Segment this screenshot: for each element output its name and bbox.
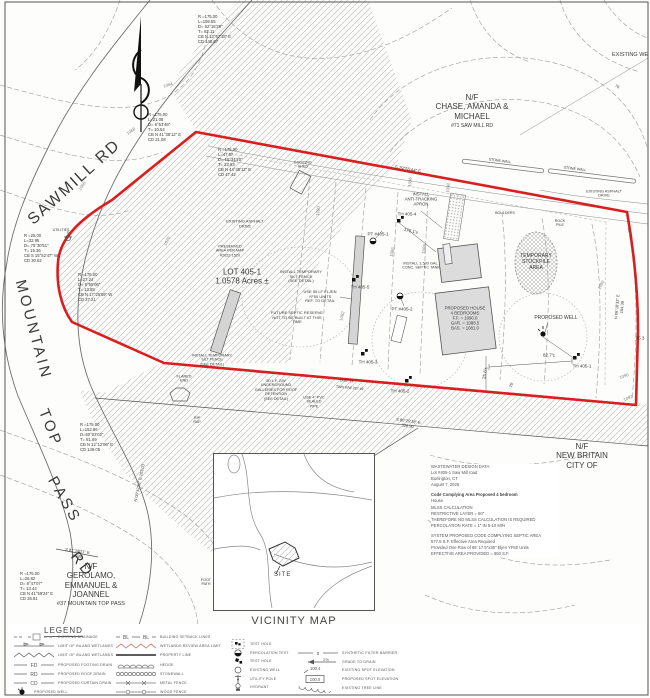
north-arrow-icon	[133, 16, 149, 132]
svg-text:CD: CD	[30, 681, 38, 687]
legend-label: PROPOSED WELL	[34, 690, 68, 694]
legend-label: LIMIT OF INLAND WETLANDS	[58, 653, 113, 657]
perc-test-markers	[370, 238, 403, 299]
legend-label: HEDGE	[160, 663, 174, 667]
legend-label: WETLANDS REVIEW AREA LIMIT	[160, 644, 221, 648]
legend-column-1: EXISTING DRAINAGELIMIT OF INLAND WETLAND…	[14, 632, 113, 697]
tree-line-icon	[298, 683, 338, 693]
legend-row: EXISTING TREE LINE	[298, 683, 398, 692]
legend-label: BUILDING SETBACK LINES	[160, 635, 211, 639]
vicinity-site-label: SITE	[274, 572, 291, 578]
svg-text:BL: BL	[123, 635, 129, 641]
legend-row: LIMIT OF INLAND WETLANDS	[14, 641, 113, 650]
distribution-box	[391, 315, 407, 343]
legend-row: PROPERTY LINE	[116, 651, 221, 660]
legend-column-3: TEST HOLEPERCOLATION TESTTEST HOLEEXISTI…	[230, 640, 289, 692]
temporary-stockpile-area	[515, 232, 557, 294]
proposed-well-marker	[538, 326, 546, 337]
legend-row: PROPOSED WELL	[14, 688, 113, 697]
legend-label: UTILITY POLE	[250, 677, 276, 681]
svg-text:BL: BL	[143, 635, 149, 641]
legend-label: TEST HOLE	[250, 642, 272, 646]
legend-label: PERCOLATION TEST	[250, 651, 289, 655]
legend-row: EXISTING DRAINAGE	[14, 632, 113, 641]
legend-label: PROPOSED ROOF DRAIN	[58, 672, 106, 676]
legend-label: PROPERTY LINE	[160, 653, 191, 657]
legend-label: PROPOSED CURTAIN DRAIN	[58, 681, 112, 685]
legend-label: HYDRANT	[250, 685, 269, 689]
svg-text:RD: RD	[30, 672, 38, 678]
legend-label: LIMIT OF INLAND WETLANDS	[58, 644, 113, 648]
hydrant-icon	[230, 682, 246, 692]
fence-wood-icon	[116, 687, 156, 697]
svg-text:100.0: 100.0	[310, 677, 321, 682]
svg-text:2%: 2%	[323, 657, 329, 662]
legend-row: RDPROPOSED ROOF DRAIN	[14, 669, 113, 678]
legend-label: GRADE TO DRAIN	[342, 660, 376, 664]
legend-label: STONEWALL	[160, 672, 184, 676]
legend-label: EXISTING TREE LINE	[342, 686, 382, 690]
svg-text:100.4: 100.4	[310, 666, 321, 671]
legend-label: EXISTING SPOT ELEVATION	[342, 668, 395, 672]
legend-label: EXISTING WELL	[250, 668, 280, 672]
vicinity-site-polygon	[269, 542, 299, 566]
legend-row: FDPROPOSED FOOTING DRAIN	[14, 660, 113, 669]
vicinity-roads	[214, 454, 372, 608]
wastewater-design-notes: WASTEWATER DESIGN DATA:Lot #405-1 Saw Mi…	[431, 464, 559, 557]
legend-label: EXISTING DRAINAGE	[58, 635, 98, 639]
anti-tracking-apron	[444, 193, 466, 241]
legend-row: CDPROPOSED CURTAIN DRAIN	[14, 678, 113, 687]
legend: LEGEND EXISTING DRAINAGELIMIT OF INLAND …	[8, 624, 647, 694]
eljen-trench	[348, 236, 365, 344]
vicinity-map: SITE	[213, 453, 375, 611]
legend-label: PROPOSED FOOTING DRAIN	[58, 663, 112, 667]
stone-wall	[462, 159, 636, 183]
legend-column-2: BLBLBUILDING SETBACK LINESWETLANDS REVIE…	[116, 632, 221, 697]
legend-label: TEST HOLE	[250, 659, 272, 663]
legend-label: WOOD FENCE	[160, 690, 187, 694]
site-plan-sheet: SAWMILL RDMOUNTAINTOPPASSRDR =175.00 L=1…	[0, 0, 650, 698]
legend-label: SYNTHETIC FILTER BARRIER	[342, 651, 397, 655]
legend-row: WETLANDS REVIEW AREA LIMIT	[116, 641, 221, 650]
wastewater-note-line: EFFECTIVE AREA PROVIDED = 650 S.F.	[431, 551, 559, 557]
legend-row: STONEWALL	[116, 669, 221, 678]
legend-row: HYDRANT	[230, 683, 289, 692]
legend-row: HEDGE	[116, 660, 221, 669]
well-proposed-icon	[14, 687, 30, 697]
legend-row: LIMIT OF INLAND WETLANDS	[14, 651, 113, 660]
legend-label: PROPOSED SPOT ELEVATION	[342, 677, 398, 681]
legend-row: WOOD FENCE	[116, 688, 221, 697]
legend-label: METAL FENCE	[160, 681, 187, 685]
legend-column-4: sSYNTHETIC FILTER BARRIER2%GRADE TO DRAI…	[298, 649, 398, 692]
legend-row: METAL FENCE	[116, 678, 221, 687]
proposed-house-footprint	[430, 243, 497, 355]
svg-text:FD: FD	[31, 663, 38, 669]
legend-row: BLBLBUILDING SETBACK LINES	[116, 632, 221, 641]
